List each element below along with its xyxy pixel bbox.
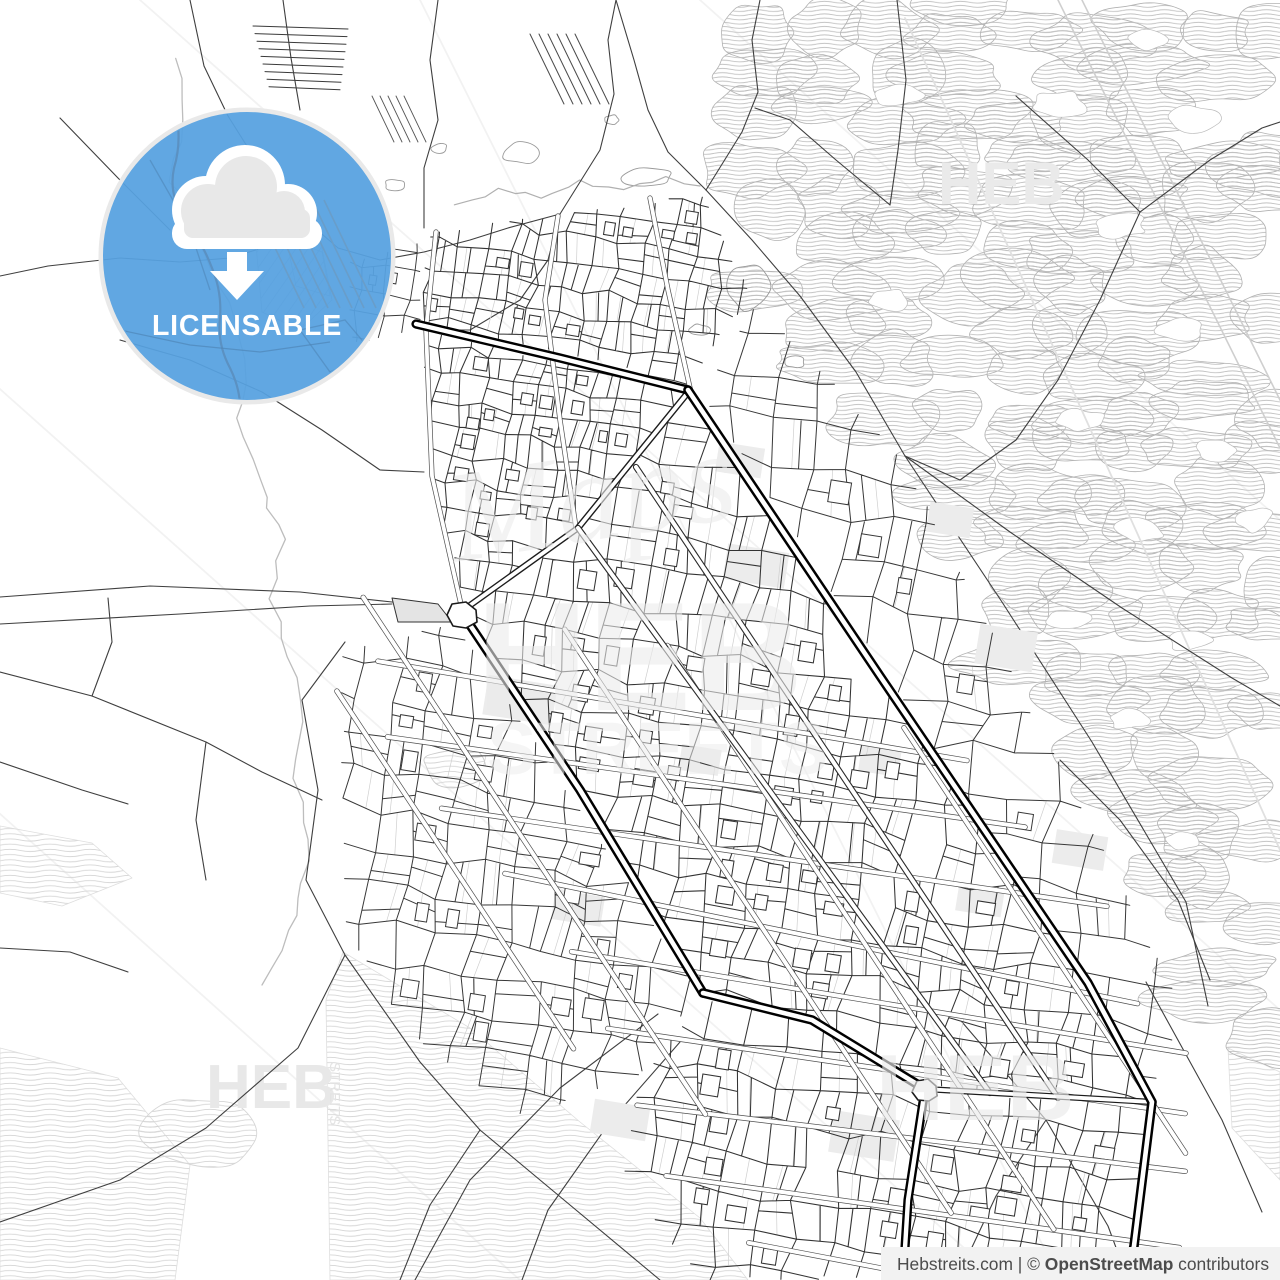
svg-text:HEB: HEB [938,150,1065,217]
svg-text:STREETS: STREETS [487,707,828,790]
svg-text:HEB: HEB [876,1035,1074,1140]
svg-text:Hebstreits.com | © OpenStreetM: Hebstreits.com | © OpenStreetMap contrib… [897,1254,1269,1274]
svg-text:STREITS: STREITS [326,1062,343,1125]
svg-text:LICENSABLE: LICENSABLE [152,310,342,342]
